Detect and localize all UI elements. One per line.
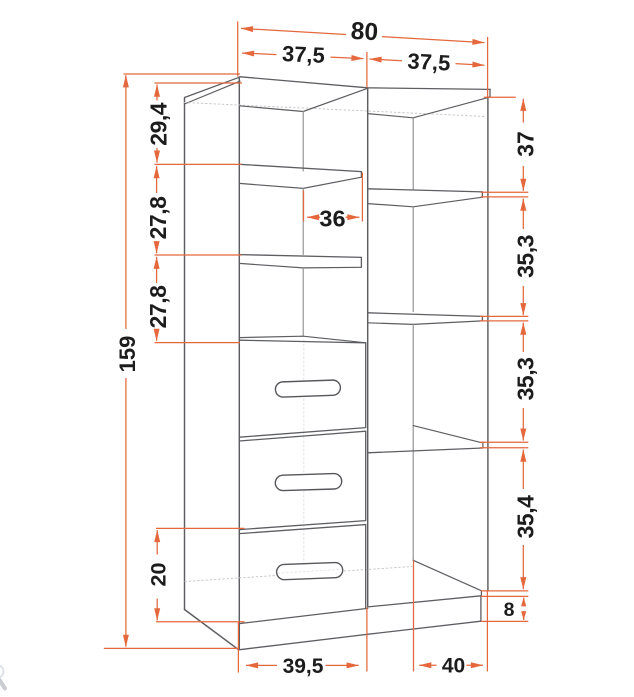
svg-text:159: 159 xyxy=(115,336,140,373)
svg-text:37,5: 37,5 xyxy=(407,48,451,75)
svg-text:80: 80 xyxy=(350,18,379,47)
svg-text:37,5: 37,5 xyxy=(282,41,326,68)
svg-text:36: 36 xyxy=(319,205,345,231)
svg-text:29,4: 29,4 xyxy=(146,102,172,145)
svg-text:35,3: 35,3 xyxy=(513,358,539,401)
svg-text:35,4: 35,4 xyxy=(513,495,539,538)
svg-text:40: 40 xyxy=(442,655,465,678)
svg-text:35,3: 35,3 xyxy=(513,235,539,278)
svg-text:39,5: 39,5 xyxy=(283,655,324,678)
svg-text:37: 37 xyxy=(513,131,539,157)
svg-text:27,8: 27,8 xyxy=(145,285,171,328)
svg-text:27,8: 27,8 xyxy=(145,196,171,239)
svg-text:20: 20 xyxy=(147,563,171,587)
svg-text:8: 8 xyxy=(504,599,515,621)
